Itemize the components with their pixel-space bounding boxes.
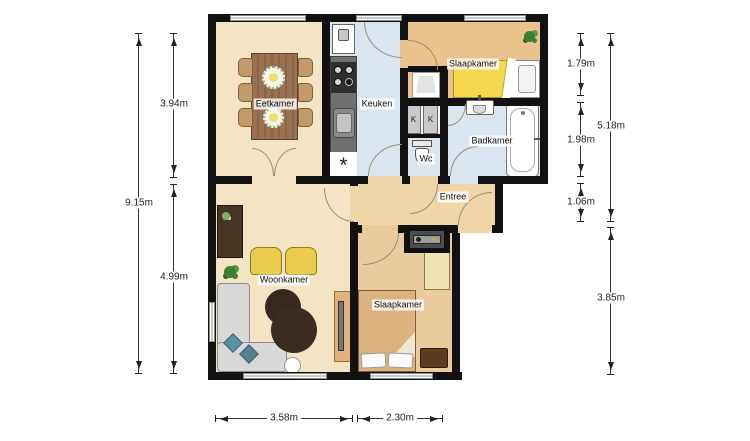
table-centerpiece-dot: [269, 73, 278, 82]
door-opening: [368, 176, 402, 184]
closet-k1: K: [406, 104, 421, 134]
room-label-eetkamer: Eetkamer: [254, 99, 297, 110]
wall: [404, 134, 442, 138]
room-label-keuken: Keuken: [360, 99, 395, 110]
dimension-label-right-middle: 1.98m: [564, 135, 598, 146]
door-opening: [362, 225, 398, 233]
door-opening: [450, 176, 478, 184]
rug-icon: [271, 307, 317, 353]
pillow-icon: [388, 352, 414, 368]
dimension-label-right-lower-total: 3.85m: [594, 293, 628, 304]
plant-icon: [222, 212, 230, 220]
nightstand-icon: [420, 348, 448, 368]
dining-chair-icon: [298, 58, 313, 77]
faucet-icon: [478, 95, 481, 101]
wall: [440, 66, 448, 102]
door-opening: [252, 176, 296, 184]
tv-icon: [338, 301, 344, 351]
washer-connection-symbol: *: [339, 154, 347, 177]
door-opening: [458, 225, 492, 233]
dining-chair-icon: [238, 83, 253, 102]
boiler-knob-icon: [338, 29, 349, 41]
dining-chair-icon: [298, 83, 313, 102]
dining-chair-icon: [298, 108, 313, 127]
window: [230, 15, 306, 21]
bathtub-faucet-icon: [534, 138, 540, 140]
armchair-icon: [285, 247, 317, 275]
cabinet-icon: [217, 205, 243, 258]
pillow-icon: [518, 65, 536, 93]
burner-icon: [334, 78, 342, 86]
armchair-icon: [250, 247, 282, 275]
dimension-label-bottom-left: 3.58m: [267, 413, 301, 424]
pillow-icon: [361, 352, 387, 368]
window: [370, 373, 433, 379]
washer-connection-box: *: [330, 152, 357, 178]
room-label-slaapkamer-top: Slaapkamer: [447, 59, 499, 70]
dimension-label-left-top: 3.94m: [157, 99, 191, 110]
window: [464, 15, 526, 21]
closet-k1-label: K: [411, 115, 416, 124]
wall: [322, 22, 330, 180]
dining-chair-icon: [238, 58, 253, 77]
dimension-label-left-total: 9.15m: [122, 198, 156, 209]
room-label-wc: Wc: [418, 154, 435, 165]
toilet-cistern-icon: [412, 140, 432, 147]
room-label-badkamer: Badkamer: [469, 136, 514, 147]
dimension-label-left-bottom: 4.99m: [157, 272, 191, 283]
burner-icon: [334, 66, 342, 74]
closet-k2: K: [423, 104, 438, 134]
burner-icon: [345, 66, 353, 74]
window: [209, 302, 215, 342]
table-centerpiece-dot: [269, 113, 278, 122]
dimension-label-right-upper-total: 5.18m: [594, 121, 628, 132]
dining-chair-icon: [238, 108, 253, 127]
closet-k2-label: K: [428, 115, 433, 124]
wall: [452, 225, 460, 380]
kitchen-sink-basin-icon: [336, 113, 352, 133]
floorplan-canvas: * K K Eetkamer Keuken: [0, 0, 750, 441]
bathroom-sink-bowl-icon: [473, 105, 486, 114]
meter-knob-icon: [416, 237, 421, 242]
dimension-label-right-top: 1.79m: [564, 59, 598, 70]
burner-icon: [345, 78, 353, 86]
dimension-label-right-small: 1.06m: [564, 197, 598, 208]
bathtub-drain-icon: [521, 111, 525, 115]
door-opening: [410, 176, 438, 184]
plant-icon: [524, 31, 535, 42]
dimension-label-bottom-right: 2.30m: [383, 413, 417, 424]
room-label-slaapkamer-bottom: Slaapkamer: [372, 300, 424, 311]
wall: [440, 98, 448, 180]
washbasin-icon: [416, 76, 436, 93]
meter-dot-icon: [432, 237, 436, 241]
wardrobe-icon: [424, 252, 450, 290]
plant-icon: [224, 266, 236, 278]
room-label-woonkamer: Woonkamer: [258, 275, 310, 286]
room-label-entree: Entree: [438, 192, 469, 203]
window: [356, 15, 402, 21]
window: [243, 373, 327, 379]
